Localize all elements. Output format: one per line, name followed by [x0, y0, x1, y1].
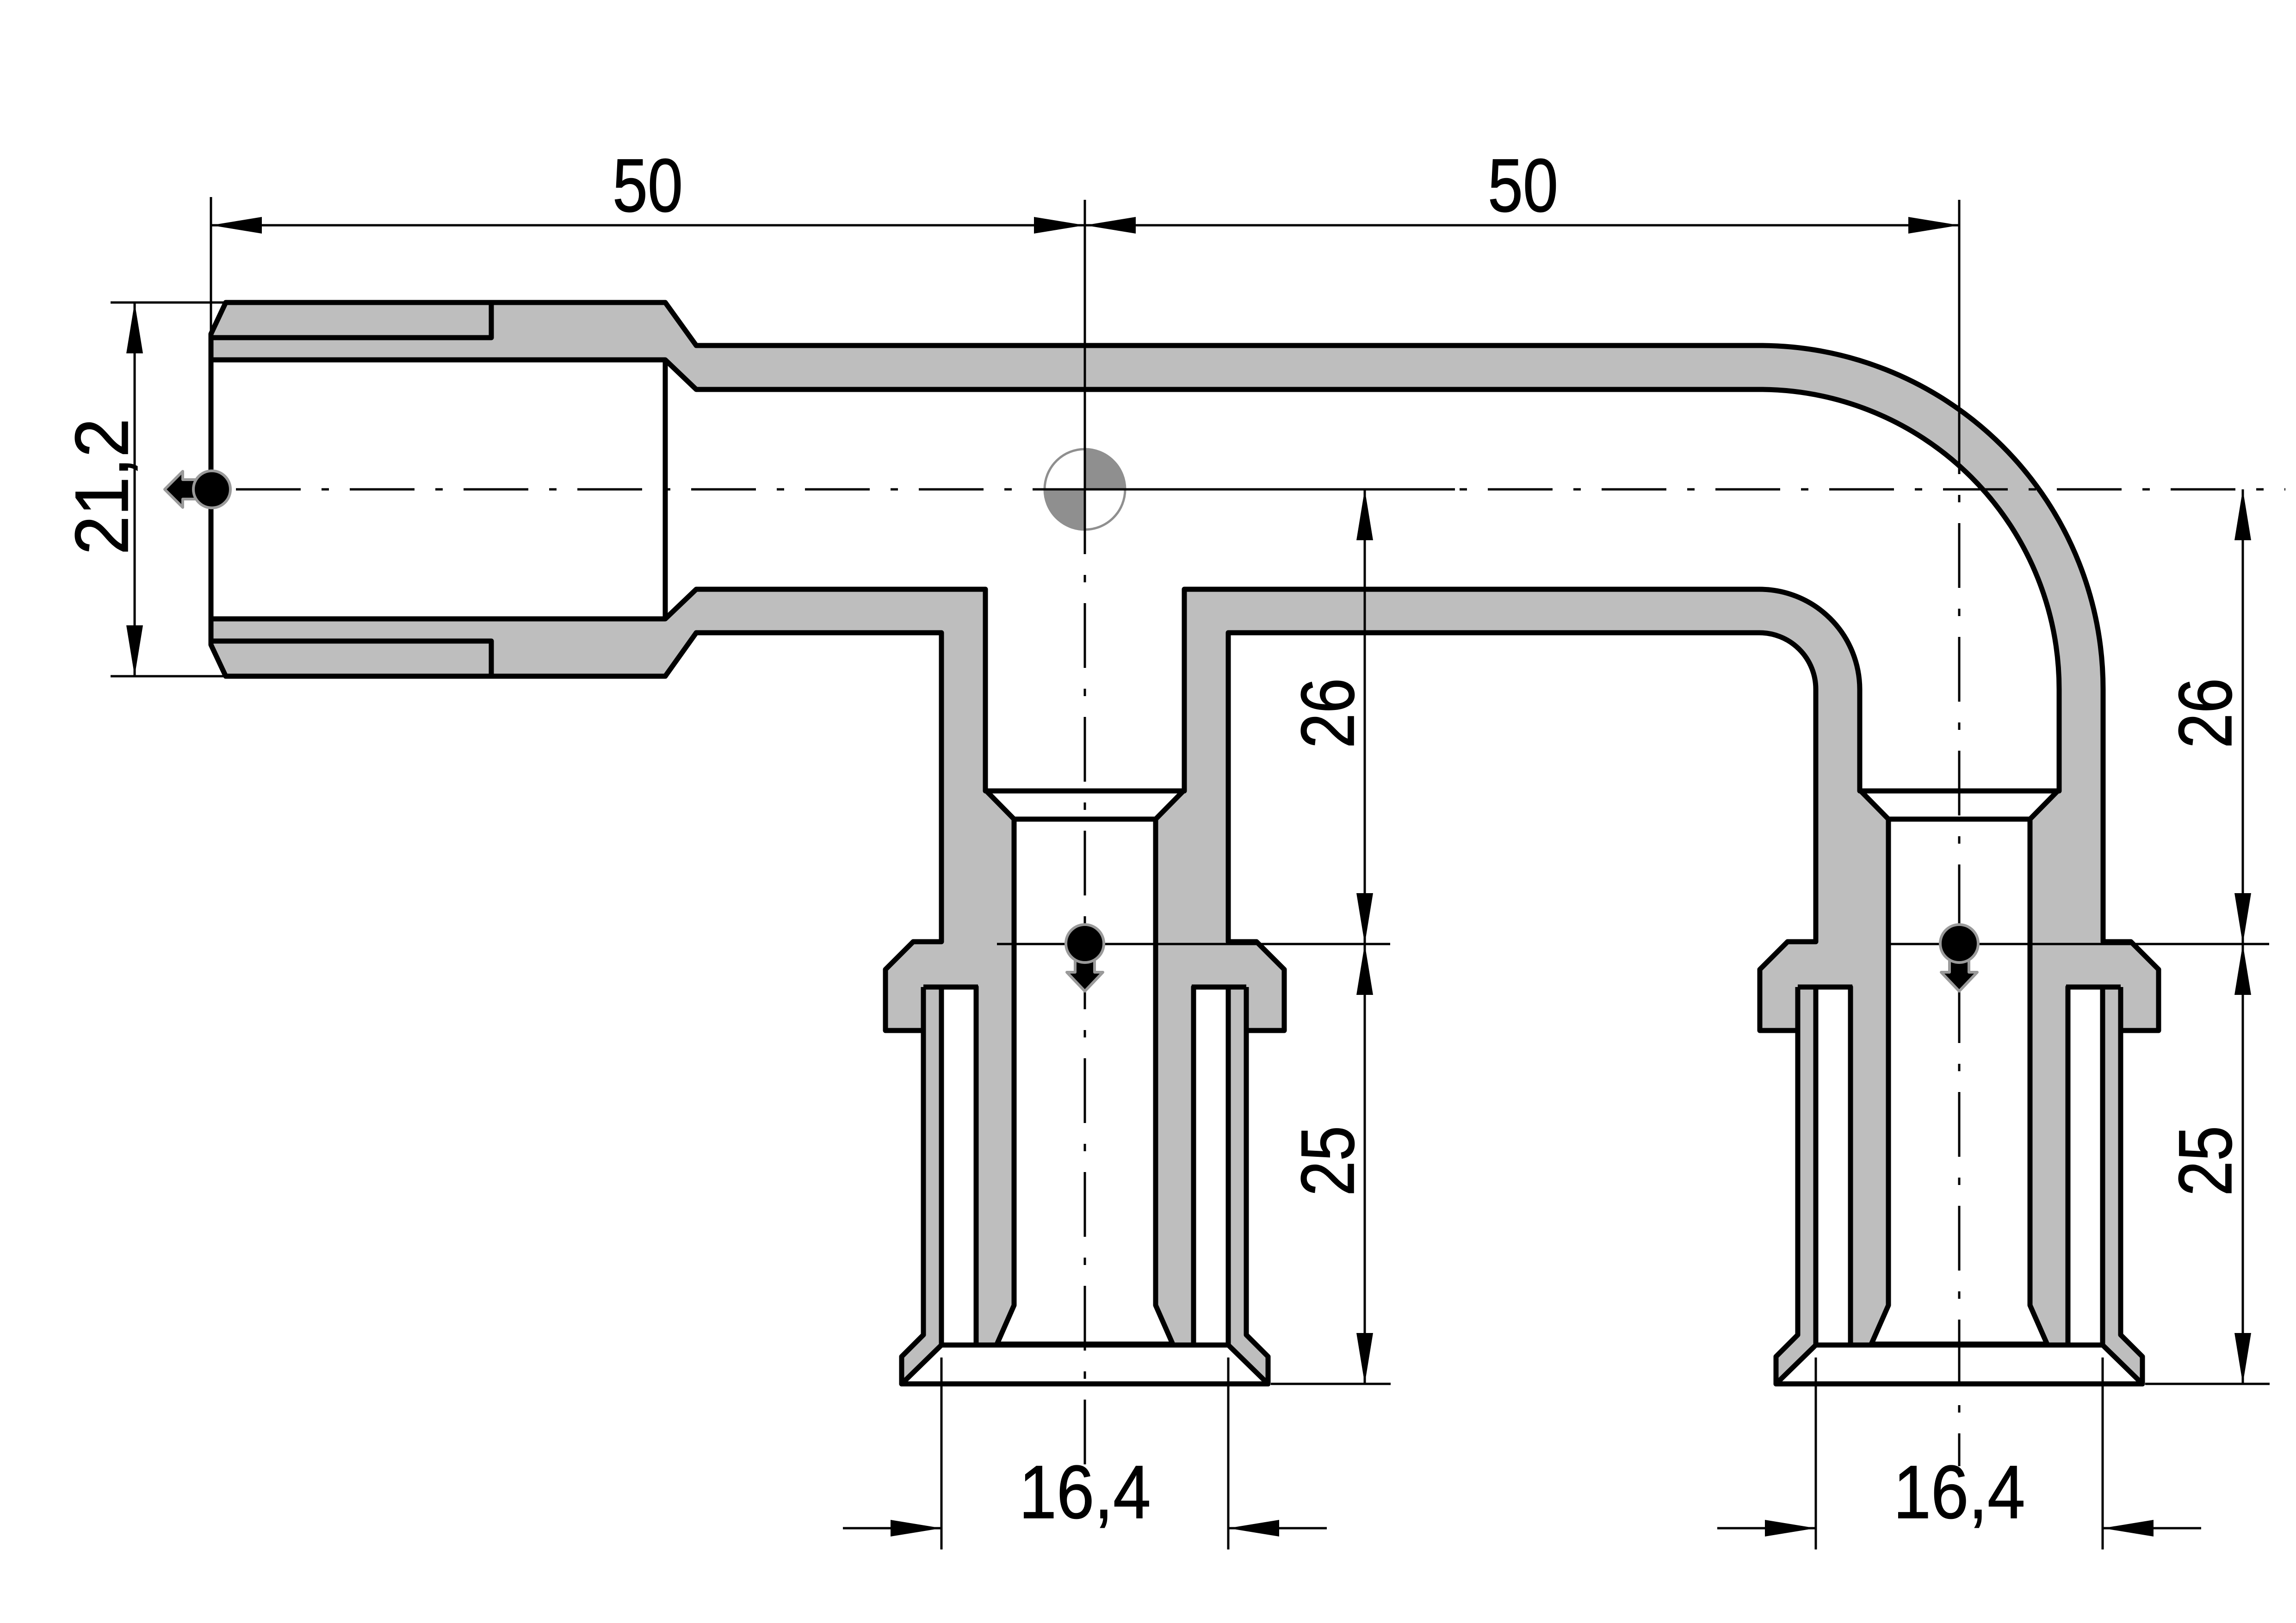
svg-text:26: 26	[2163, 678, 2247, 748]
svg-text:50: 50	[1488, 143, 1558, 228]
svg-text:16,4: 16,4	[1894, 1450, 2025, 1534]
svg-text:25: 25	[2163, 1126, 2247, 1196]
svg-text:50: 50	[613, 143, 683, 228]
svg-text:16,4: 16,4	[1019, 1450, 1151, 1534]
svg-text:26: 26	[1285, 678, 1370, 748]
svg-text:21,2: 21,2	[59, 419, 144, 555]
svg-text:25: 25	[1285, 1126, 1370, 1196]
